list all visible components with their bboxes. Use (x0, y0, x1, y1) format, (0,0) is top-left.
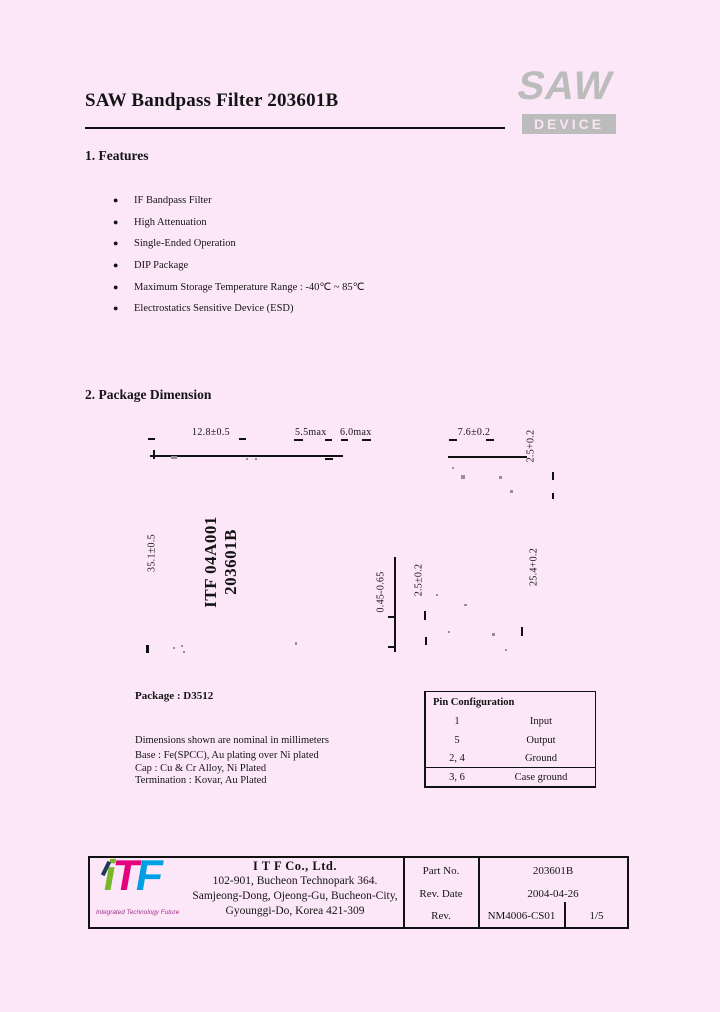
lead-tick (146, 645, 149, 653)
dim-arrow (148, 438, 155, 440)
outline-tick (552, 472, 554, 480)
itf-tagline: Integrated Technology Future (96, 909, 188, 916)
dim-height-max2: 6.0max (340, 427, 372, 438)
feature-text: IF Bandpass Filter (134, 195, 212, 206)
rev-value: NM4006-CS01 (479, 910, 564, 922)
scan-mark (505, 649, 507, 651)
scan-mark (448, 631, 450, 633)
outline-tick (325, 458, 333, 460)
pin-function: Case ground (488, 772, 594, 783)
datasheet-page: SAW Bandpass Filter 203601B SAW DEVICE 1… (0, 0, 720, 1012)
dim-body-height: 35.1±0.5 (147, 534, 158, 572)
dim-body-width: 12.8±0.5 (172, 427, 250, 438)
bullet-icon: ● (113, 283, 122, 292)
lead-tick (388, 616, 395, 618)
features-list: ●IF Bandpass Filter ●High Attenuation ●S… (113, 190, 364, 320)
scan-mark (181, 645, 183, 647)
scan-mark (499, 476, 502, 479)
scan-mark (246, 458, 248, 460)
pin-config-title: Pin Configuration (433, 697, 514, 708)
address-line: Gyounggi-Do, Korea 421-309 (186, 904, 404, 919)
material-notes: Base : Fe(SPCC), Au plating over Ni plat… (135, 750, 319, 788)
outline-tick (153, 450, 155, 459)
outline-tick (552, 493, 554, 499)
features-heading: 1. Features (85, 148, 149, 164)
scan-mark (255, 458, 257, 460)
bullet-icon: ● (113, 218, 122, 227)
bullet-icon: ● (113, 196, 122, 205)
pin-function: Ground (488, 753, 594, 764)
bullet-icon: ● (113, 304, 122, 313)
pin-number: 1 (426, 716, 488, 727)
company-info: I T F Co., Ltd. 102-901, Bucheon Technop… (186, 859, 404, 919)
feature-text: Maximum Storage Temperature Range : -40℃… (134, 281, 364, 293)
rev-date-label: Rev. Date (404, 888, 478, 900)
pin-table-separator (426, 767, 595, 768)
dim-lead-pitch: 2.5±0.2 (414, 564, 425, 597)
bullet-icon: ● (113, 239, 122, 248)
address-line: Samjeong-Dong, Ojeong-Gu, Bucheon-City, (186, 889, 404, 904)
package-marking: ITF 04A001 203601B (201, 516, 241, 608)
itf-logo-letters: iTF (100, 852, 164, 901)
dim-lead-length: 25.4+0.2 (529, 548, 540, 586)
pin-function: Output (488, 735, 594, 746)
rev-label: Rev. (404, 910, 478, 922)
part-no-label: Part No. (404, 865, 478, 877)
dim-top-depth: 2.5+0.2 (526, 430, 537, 463)
marking-line2: 203601B (221, 516, 241, 608)
outline-line (150, 455, 343, 457)
lead-line (394, 557, 396, 652)
page-number: 1/5 (566, 910, 627, 922)
dim-arrow (486, 439, 494, 441)
feature-item: ●Electrostatics Sensitive Device (ESD) (113, 298, 364, 320)
dim-arrow (239, 438, 246, 440)
scan-mark (461, 475, 465, 479)
feature-item: ●High Attenuation (113, 212, 364, 234)
marking-line1: ITF 04A001 (201, 516, 221, 608)
feature-text: DIP Package (134, 260, 188, 271)
feature-item: ●Single-Ended Operation (113, 233, 364, 255)
scan-mark (183, 651, 185, 653)
lead-tick (424, 611, 426, 620)
feature-item: ●IF Bandpass Filter (113, 190, 364, 212)
feature-text: High Attenuation (134, 217, 207, 228)
dim-height-max1: 5.5max (295, 427, 327, 438)
note-base: Base : Fe(SPCC), Au plating over Ni plat… (135, 750, 319, 763)
lead-tick (521, 627, 523, 636)
dim-arrow (362, 439, 371, 441)
lead-tick (425, 637, 427, 645)
scan-mark (464, 604, 467, 606)
note-cap: Cap : Cu & Cr Alloy, Ni Plated (135, 763, 319, 776)
dim-top-width: 7.6±0.2 (450, 427, 498, 438)
scan-mark (452, 467, 454, 469)
package-name: Package : D3512 (135, 690, 213, 702)
scan-mark (171, 456, 177, 459)
dim-arrow (341, 439, 348, 441)
package-dimension-heading: 2. Package Dimension (85, 387, 211, 403)
pin-function: Input (488, 716, 594, 727)
dim-arrow (449, 439, 457, 441)
lead-tick (388, 646, 395, 648)
scan-mark (492, 633, 495, 636)
itf-logo: iTF Integrated Technology Future (96, 860, 188, 922)
scan-mark (436, 594, 438, 596)
dim-arrow (325, 439, 332, 441)
address-line: 102-901, Bucheon Technopark 364. (186, 874, 404, 889)
feature-text: Electrostatics Sensitive Device (ESD) (134, 303, 294, 314)
scan-mark (510, 490, 513, 493)
scan-mark (295, 642, 297, 645)
saw-logo-text: SAW (513, 64, 617, 109)
saw-device-logo: SAW DEVICE (514, 70, 618, 136)
title-rule (85, 127, 505, 129)
outline-line (448, 456, 527, 458)
dimensions-note: Dimensions shown are nominal in millimet… (135, 735, 329, 746)
feature-item: ●Maximum Storage Temperature Range : -40… (113, 276, 364, 298)
dim-lead-width: 0.45-0.65 (376, 571, 387, 612)
rev-date-value: 2004-04-26 (479, 888, 627, 900)
footer-block: iTF Integrated Technology Future I T F C… (88, 856, 629, 929)
page-title: SAW Bandpass Filter 203601B (85, 90, 338, 112)
pin-number: 2, 4 (426, 753, 488, 764)
feature-text: Single-Ended Operation (134, 238, 236, 249)
dim-arrow (294, 439, 303, 441)
note-termination: Termination : Kovar, Au Plated (135, 775, 319, 788)
device-logo-bar: DEVICE (522, 114, 616, 134)
part-no-value: 203601B (479, 865, 627, 877)
pin-number: 5 (426, 735, 488, 746)
pin-number: 3, 6 (426, 772, 488, 783)
pin-configuration-table: Pin Configuration 1 Input 5 Output 2, 4 … (424, 691, 596, 788)
scan-mark (173, 647, 175, 649)
feature-item: ●DIP Package (113, 255, 364, 277)
bullet-icon: ● (113, 261, 122, 270)
company-name: I T F Co., Ltd. (186, 859, 404, 874)
